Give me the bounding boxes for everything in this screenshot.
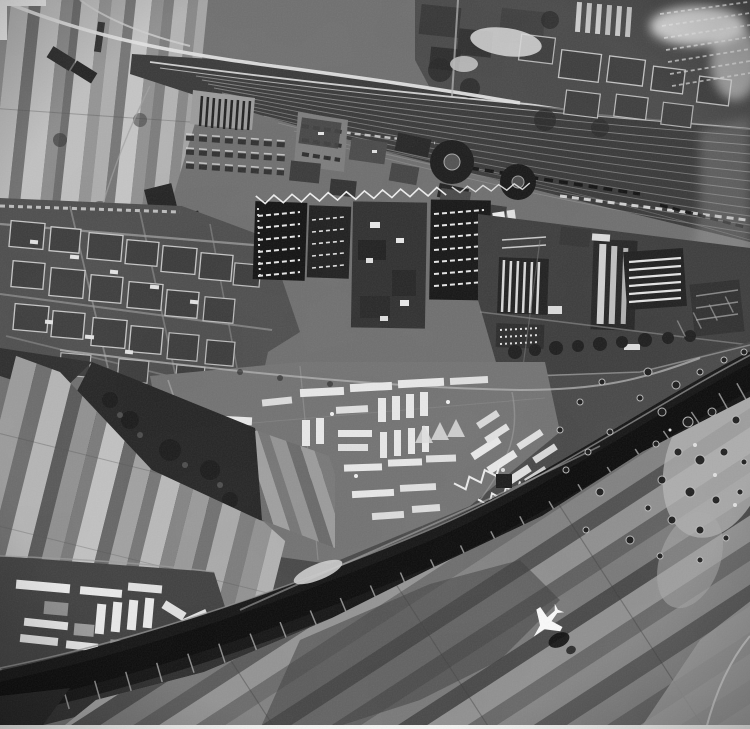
vignette [0, 0, 750, 729]
aerial-photo-canvas [0, 0, 750, 729]
aerial-photograph [0, 0, 750, 729]
photo-overlays [0, 0, 750, 729]
